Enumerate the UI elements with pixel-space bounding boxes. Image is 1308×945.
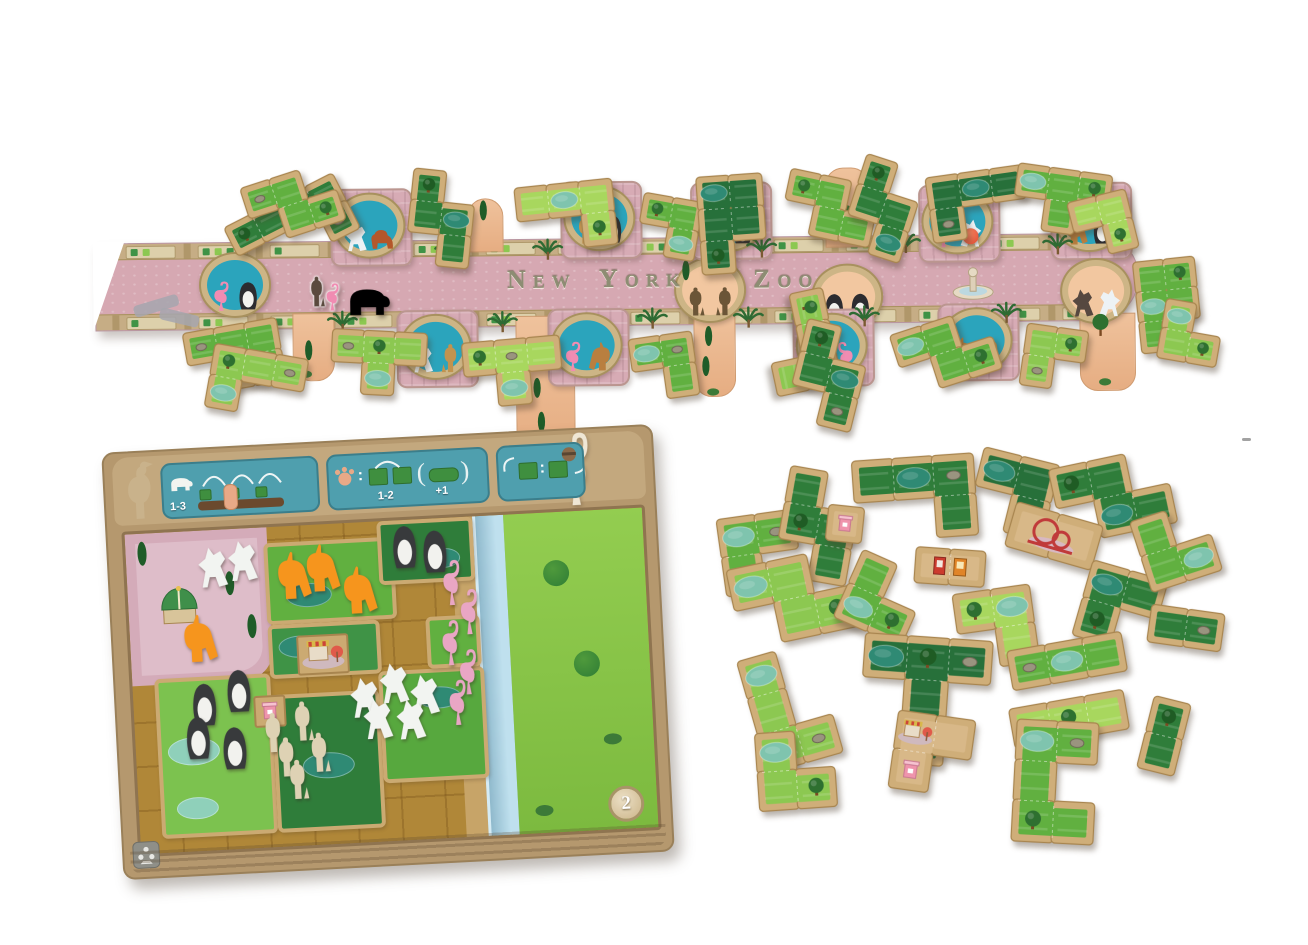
zoo-enclosure-tile[interactable]: [618, 321, 711, 414]
player-board: 1-3 : 1-2 ( ) +1: [101, 424, 675, 880]
foodstand-attraction: [296, 633, 350, 676]
move-arcs-icon: [196, 462, 289, 491]
zoo-enclosure-tile[interactable]: [452, 325, 575, 419]
close-paren: ): [460, 456, 470, 486]
open-paren: (: [416, 458, 426, 488]
attraction-tile[interactable]: [878, 700, 986, 808]
zoo-enclosure-tile[interactable]: [394, 158, 487, 279]
product-photo-scene: New York Zoo 1-3: [0, 0, 1308, 945]
colon-separator: :: [539, 460, 545, 478]
meeple-penguin[interactable]: [180, 714, 216, 762]
meeple-kangaroo[interactable]: [301, 541, 344, 593]
zoo-enclosure-tile[interactable]: [1001, 709, 1108, 854]
enclosure-step-icon: [255, 486, 268, 498]
meeple-penguin[interactable]: [217, 724, 253, 772]
foodstand-icon: [298, 635, 348, 673]
bonus-tile-icon: [428, 467, 459, 483]
place-range-label: 1-2: [378, 489, 395, 502]
paw-tile-icon: [548, 460, 568, 478]
enclosure-step-icon: [199, 489, 212, 501]
zoo-enclosure-tile[interactable]: [1126, 685, 1203, 788]
colon-separator: :: [357, 467, 363, 485]
zoo-map-area: [121, 504, 661, 857]
meeple-flamingo[interactable]: [443, 679, 475, 727]
zoo-enclosure-tile[interactable]: [320, 319, 437, 407]
paw-tile-icon: [368, 468, 388, 486]
zoo-enclosure-tile[interactable]: [745, 719, 847, 821]
raccoon-icon: [559, 446, 578, 463]
action-panel-place-animals: : 1-2 ( ) +1: [326, 447, 491, 511]
meeple-arctic-fox[interactable]: [224, 537, 262, 583]
zoo-enclosure-tile[interactable]: [504, 168, 628, 264]
meeple-kangaroo[interactable]: [179, 612, 222, 664]
elephant-icon: [167, 472, 194, 493]
swap-arrow-icon: [372, 455, 403, 471]
heron-statue-icon: [120, 458, 163, 524]
meeple-penguin[interactable]: [221, 667, 257, 715]
meeple-kangaroo[interactable]: [338, 563, 381, 615]
move-range-label: 1-3: [170, 500, 187, 513]
zoo-enclosure-tile[interactable]: [194, 333, 320, 433]
meeple-meerkat[interactable]: [282, 757, 316, 801]
paw-icon: [333, 463, 356, 488]
action-panel-move-animals: 1-3: [160, 455, 321, 519]
bonus-label: +1: [435, 485, 448, 498]
zoo-enclosure-tile[interactable]: [1146, 288, 1236, 378]
paw-tile-icon: [518, 462, 538, 480]
zoo-enclosure-tile[interactable]: [878, 294, 1014, 410]
zoo-enclosure-tile[interactable]: [1009, 313, 1099, 403]
zoo-enclosure-tile[interactable]: [686, 163, 778, 285]
action-panel-swap-animals: :: [495, 441, 586, 502]
meeple-arctic-fox[interactable]: [392, 695, 430, 741]
pointer-finger-icon: [223, 484, 238, 511]
